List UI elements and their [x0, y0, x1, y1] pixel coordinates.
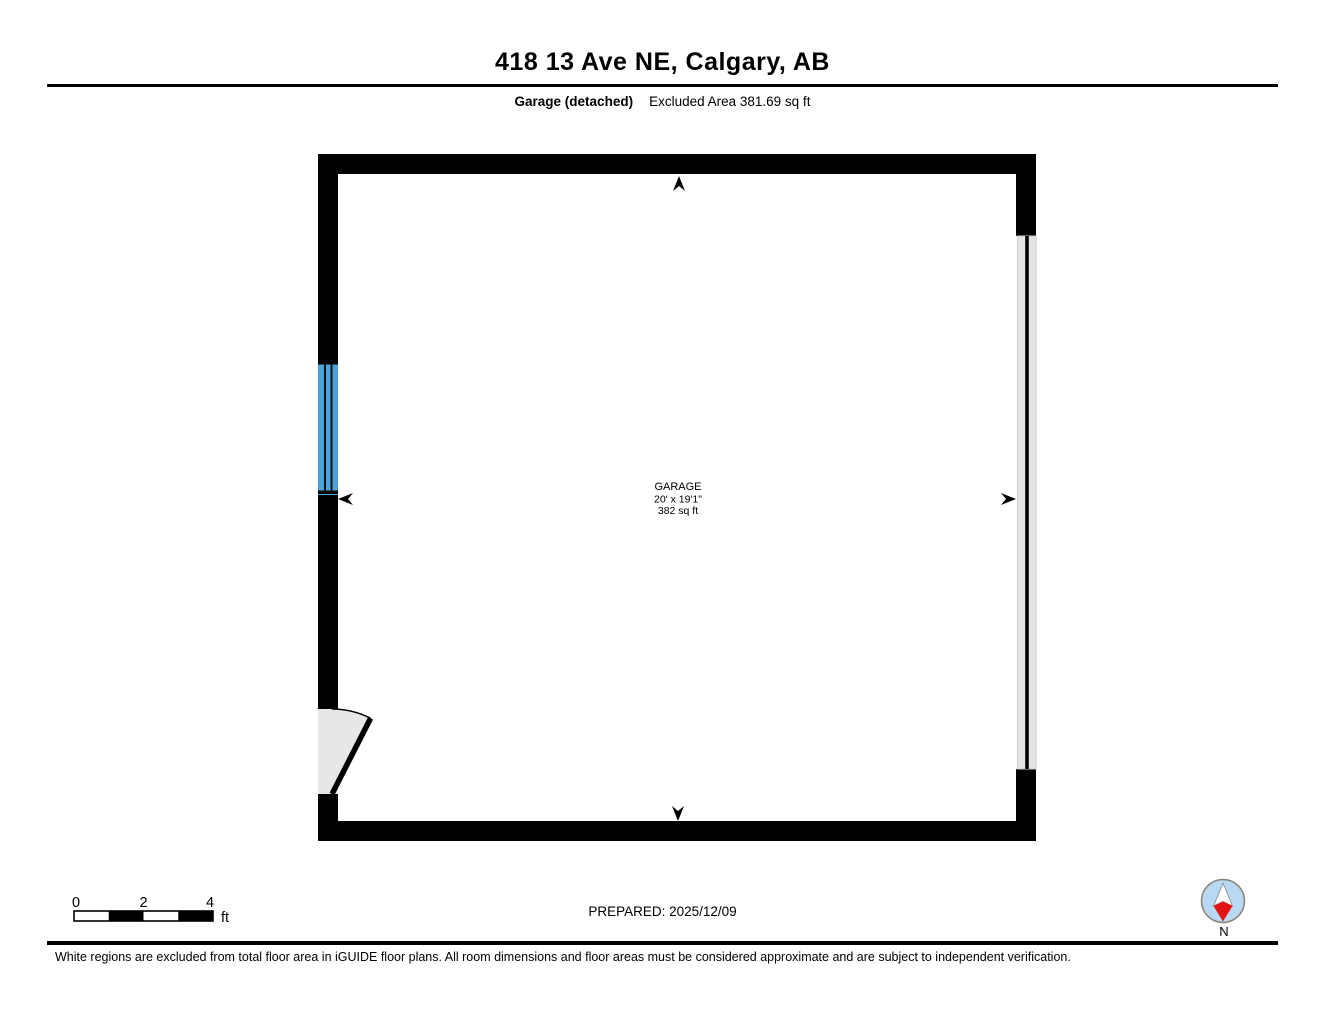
compass-north-label: N: [1219, 924, 1228, 939]
room-dimensions: 20' x 19'1": [654, 494, 702, 506]
window-cap-top: [318, 361, 338, 365]
wall-right-upper: [1016, 154, 1036, 236]
room-label: GARAGE 20' x 19'1" 382 sq ft: [654, 481, 702, 517]
prepared-date-label: PREPARED: 2025/12/09: [0, 904, 1325, 919]
dimension-arrow-down-icon: [672, 806, 684, 821]
garage-door: [1018, 236, 1037, 769]
footer-disclaimer: White regions are excluded from total fl…: [55, 950, 1285, 964]
entry-door: [318, 709, 371, 794]
wall-left-lower: [318, 794, 338, 841]
dimension-arrow-left-icon: [338, 493, 353, 505]
floorplan-drawing: GARAGE 20' x 19'1" 382 sq ft 0 2 4 ft N: [0, 0, 1325, 1024]
wall-bottom: [318, 821, 1036, 841]
garage-door-track-line: [1025, 236, 1029, 769]
wall-left-middle: [318, 493, 338, 709]
room-name: GARAGE: [654, 481, 701, 493]
window: [318, 361, 338, 495]
wall-right-lower: [1016, 769, 1036, 841]
room-area: 382 sq ft: [658, 505, 698, 517]
window-glass: [318, 362, 338, 495]
window-cap-bottom: [318, 491, 338, 495]
wall-top: [318, 154, 1036, 174]
garage-room: GARAGE 20' x 19'1" 382 sq ft: [318, 154, 1036, 841]
wall-left-upper: [318, 154, 338, 364]
footer-divider: [47, 941, 1278, 945]
floorplan-page: 418 13 Ave NE, Calgary, AB Garage (detac…: [0, 0, 1325, 1024]
dimension-arrow-up-icon: [673, 176, 685, 191]
dimension-arrow-right-icon: [1001, 493, 1016, 505]
